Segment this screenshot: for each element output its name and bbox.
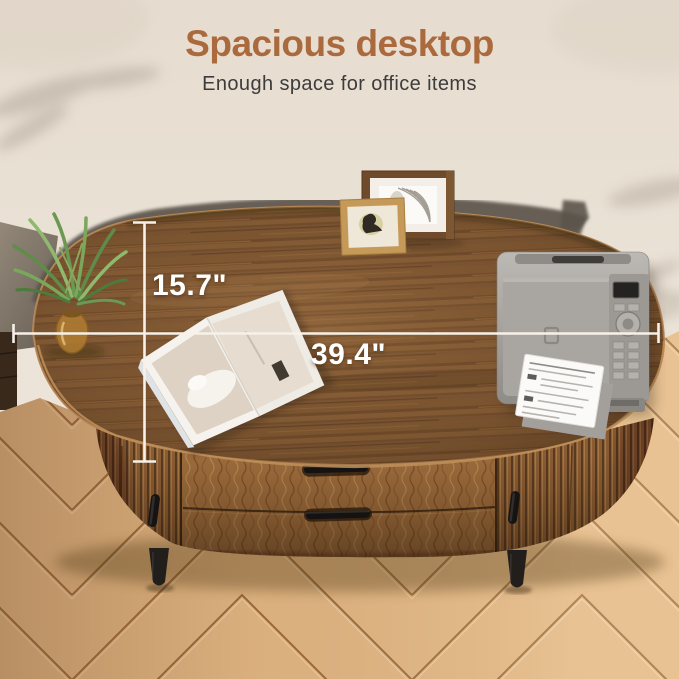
page-subtitle: Enough space for office items [0, 73, 679, 96]
drawer-handle-bottom [304, 507, 372, 522]
width-dimension-label: 39.4" [311, 340, 386, 370]
depth-dimension-label: 15.7" [152, 271, 227, 301]
picture-frame-small [340, 198, 406, 255]
product-image: Spacious desktop Enough space for office… [0, 0, 679, 679]
side-cabinet [0, 332, 17, 410]
printer [497, 252, 655, 440]
printer-control-panel [609, 274, 649, 400]
page-title: Spacious desktop [0, 24, 679, 65]
printer-top-slot [552, 256, 604, 263]
header: Spacious desktop Enough space for office… [0, 24, 679, 96]
printer-paper [514, 354, 616, 440]
printer-display [613, 282, 639, 298]
